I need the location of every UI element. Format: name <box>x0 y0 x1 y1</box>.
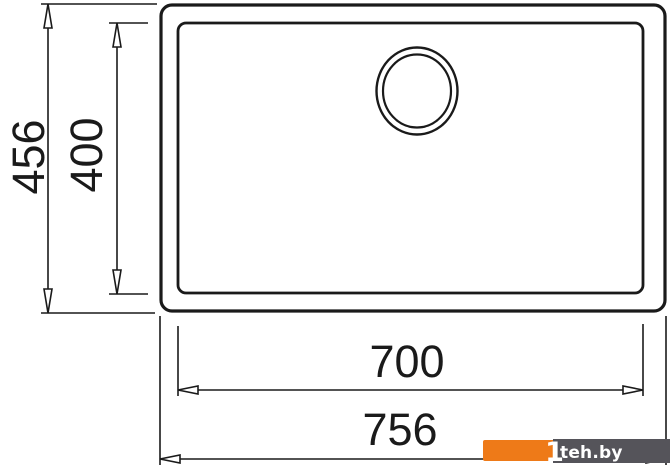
dim-456-arrow-top-icon <box>44 4 52 28</box>
dim-756-arrow-left-icon <box>160 455 180 463</box>
drawing-canvas: 456 400 700 756 1 teh.by <box>0 0 670 471</box>
sink-bowl-inner-edge <box>178 23 643 293</box>
dim-label-bowl-width: 700 <box>369 336 444 387</box>
watermark-site-label: teh.by <box>560 443 623 463</box>
dim-label-overall-height: 456 <box>3 119 54 194</box>
watermark: 1 teh.by <box>483 437 670 468</box>
dim-700-arrow-right-icon <box>623 386 643 394</box>
dim-400-arrow-bottom-icon <box>113 270 121 294</box>
dim-700-arrow-left-icon <box>178 386 198 394</box>
drain-hole-outer <box>377 48 458 135</box>
sink-outline-group <box>161 5 665 311</box>
dim-456-arrow-bottom-icon <box>44 289 52 313</box>
dim-label-overall-width: 756 <box>362 404 437 455</box>
sink-outer-rim <box>161 5 665 311</box>
dim-400-arrow-top-icon <box>113 23 121 47</box>
dim-label-bowl-height: 400 <box>61 117 112 192</box>
drain-hole-inner <box>383 55 451 128</box>
dimension-lines-group <box>41 4 666 465</box>
